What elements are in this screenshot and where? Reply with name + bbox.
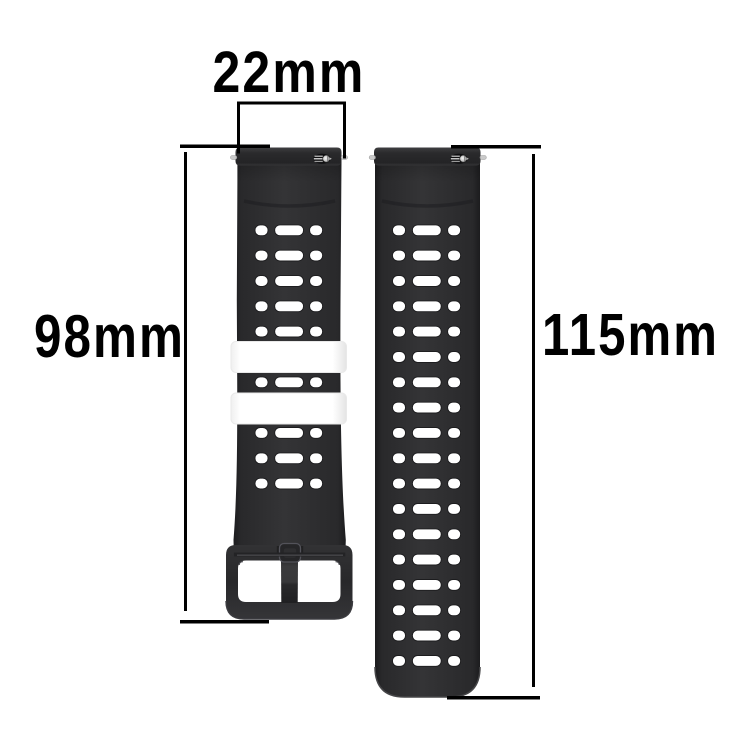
svg-text:98mm: 98mm (34, 303, 185, 370)
svg-text:22mm: 22mm (213, 40, 366, 105)
svg-text:115mm: 115mm (542, 302, 719, 368)
